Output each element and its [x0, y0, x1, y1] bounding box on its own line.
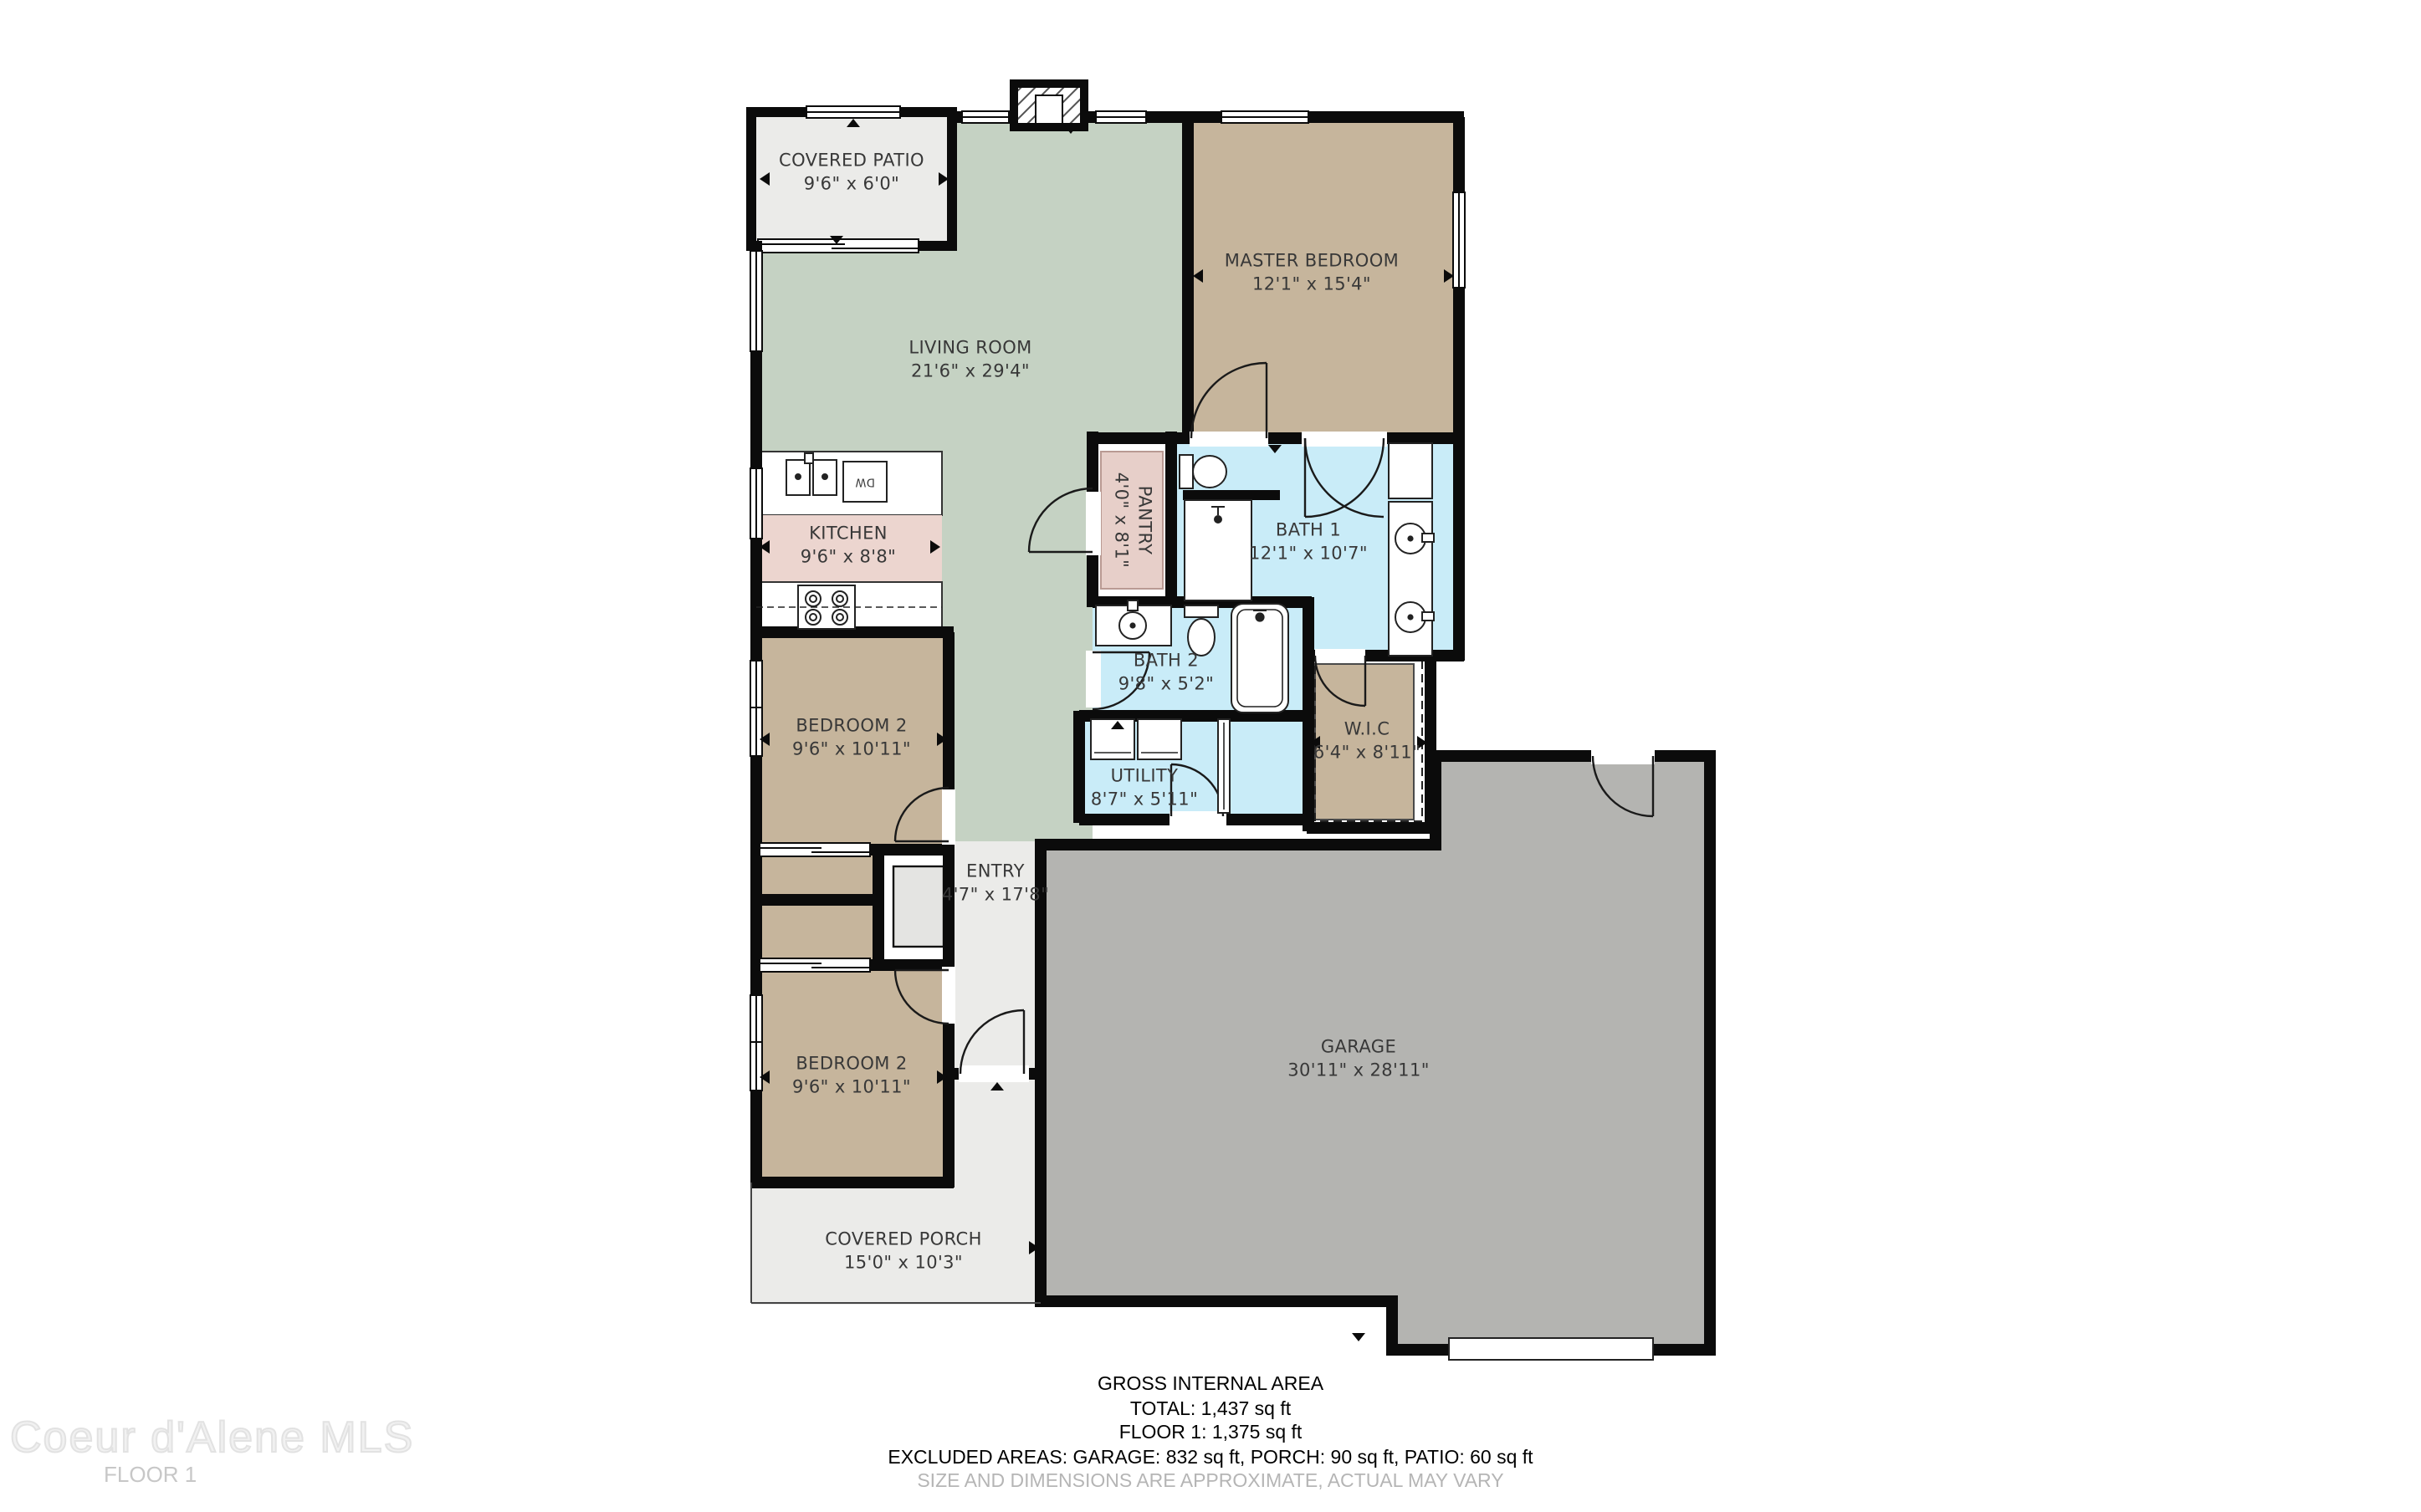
room-dims: 9'8" x 5'2" — [1118, 674, 1215, 697]
label-entry: ENTRY 4'7" x 17'8" — [942, 861, 1049, 907]
room-dims: 6'4" x 8'11" — [1313, 743, 1420, 766]
label-bath-1: BATH 1 12'1" x 10'7" — [1249, 520, 1368, 566]
label-living-room: LIVING ROOM 21'6" x 29'4" — [909, 338, 1031, 384]
toilet-tank — [1180, 455, 1193, 488]
label-kitchen: KITCHEN 9'6" x 8'8" — [801, 524, 897, 570]
room-dims: 9'6" x 10'11" — [792, 1077, 911, 1101]
room-name: LIVING ROOM — [909, 338, 1031, 361]
room-dims: 4'0" x 8'1" — [1108, 472, 1131, 569]
room-dims: 12'1" x 15'4" — [1225, 274, 1399, 298]
fireplace-chimney — [1014, 84, 1084, 127]
room-dims: 9'6" x 10'11" — [792, 739, 911, 763]
room-name: KITCHEN — [801, 524, 897, 547]
label-covered-patio: COVERED PATIO 9'6" x 6'0" — [779, 151, 924, 197]
room-dims: 30'11" x 28'11" — [1287, 1060, 1430, 1084]
patio-window — [806, 106, 900, 118]
label-garage: GARAGE 30'11" x 28'11" — [1287, 1037, 1430, 1083]
linen-closet — [1389, 443, 1432, 498]
label-bath-2: BATH 2 9'8" x 5'2" — [1118, 651, 1215, 697]
floor-indicator: FLOOR 1 — [104, 1462, 197, 1487]
label-pantry: PANTRY 4'0" x 8'1" — [1108, 472, 1154, 569]
toilet-tank — [1185, 605, 1218, 617]
label-bedroom-2-upper: BEDROOM 2 9'6" x 10'11" — [792, 716, 911, 762]
room-name: ENTRY — [942, 861, 1049, 885]
room-name: COVERED PORCH — [825, 1229, 982, 1253]
floor-plan-drawing — [0, 0, 2421, 1512]
room-dims: 4'7" x 17'8" — [942, 885, 1049, 908]
room-dims: 8'7" x 5'11" — [1091, 789, 1198, 813]
room-name: BEDROOM 2 — [792, 716, 911, 739]
gross-internal-area-title: GROSS INTERNAL AREA — [0, 1375, 2421, 1396]
room-dims: 21'6" x 29'4" — [909, 361, 1031, 385]
room-name: COVERED PATIO — [779, 151, 924, 174]
room-name: W.I.C — [1313, 719, 1420, 743]
mls-watermark: Coeur d'Alene MLS — [10, 1412, 414, 1463]
room-dims: 12'1" x 10'7" — [1249, 544, 1368, 567]
room-name: UTILITY — [1091, 766, 1198, 789]
room-name: BEDROOM 2 — [792, 1054, 911, 1077]
room-name: GARAGE — [1287, 1037, 1430, 1060]
room-name: BATH 1 — [1249, 520, 1368, 544]
room-dims: 15'0" x 10'3" — [825, 1253, 982, 1276]
room-name: BATH 2 — [1118, 651, 1215, 674]
label-master-bedroom: MASTER BEDROOM 12'1" x 15'4" — [1225, 251, 1399, 297]
room-name: PANTRY — [1131, 472, 1154, 569]
label-utility: UTILITY 8'7" x 5'11" — [1091, 766, 1198, 812]
room-dims: 9'6" x 8'8" — [801, 547, 897, 570]
disclaimer: SIZE AND DIMENSIONS ARE APPROXIMATE, ACT… — [0, 1473, 2421, 1494]
room-dims: 9'6" x 6'0" — [779, 174, 924, 197]
room-name: MASTER BEDROOM — [1225, 251, 1399, 274]
label-bedroom-2-lower: BEDROOM 2 9'6" x 10'11" — [792, 1054, 911, 1100]
label-dishwasher: DW — [855, 474, 875, 488]
dishwasher-text: DW — [855, 474, 875, 488]
label-covered-porch: COVERED PORCH 15'0" x 10'3" — [825, 1229, 982, 1275]
label-wic: W.I.C 6'4" x 8'11" — [1313, 719, 1420, 765]
floor-plan-page: COVERED PATIO 9'6" x 6'0" LIVING ROOM 21… — [0, 0, 2421, 1512]
toilet-bowl — [1193, 456, 1226, 488]
